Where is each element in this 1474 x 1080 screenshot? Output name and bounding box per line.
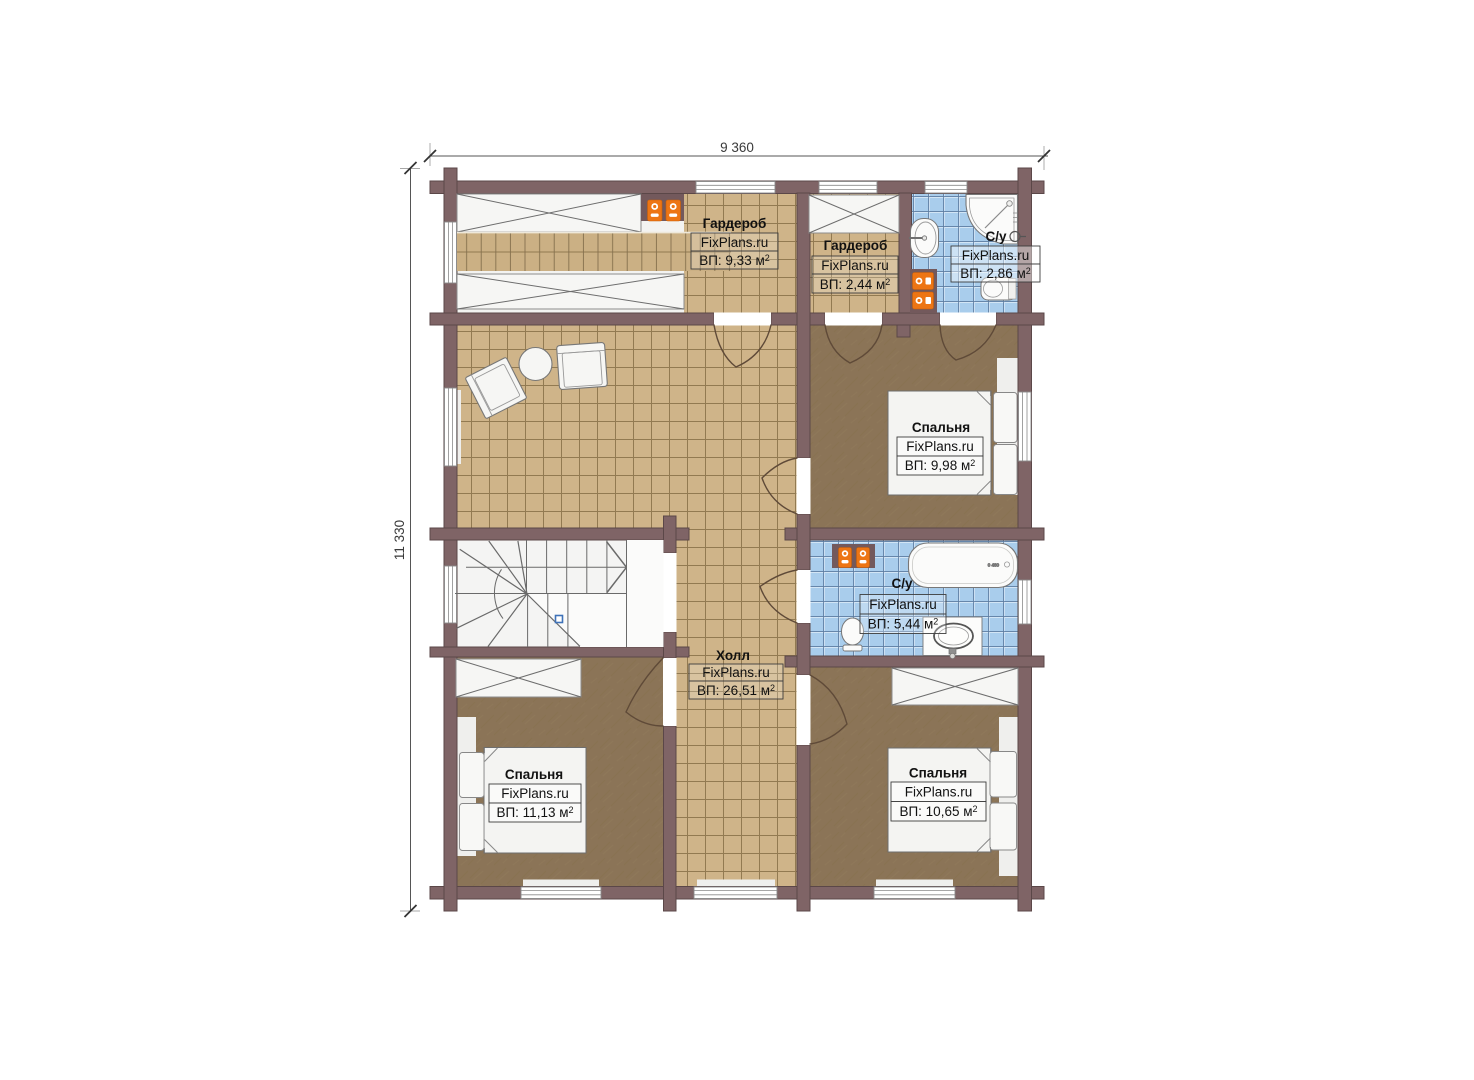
svg-text:ВП: 2,86 м2: ВП: 2,86 м2 bbox=[960, 266, 1031, 281]
svg-text:FixPlans.ru: FixPlans.ru bbox=[869, 597, 937, 612]
svg-text:Холл: Холл bbox=[716, 648, 750, 663]
svg-text:ВП: 9,33 м2: ВП: 9,33 м2 bbox=[699, 253, 770, 268]
svg-text:FixPlans.ru: FixPlans.ru bbox=[702, 665, 770, 680]
svg-text:Спальня: Спальня bbox=[909, 766, 967, 781]
svg-text:FixPlans.ru: FixPlans.ru bbox=[905, 785, 973, 800]
svg-text:Спальня: Спальня bbox=[505, 767, 563, 782]
svg-text:ВП: 9,98 м2: ВП: 9,98 м2 bbox=[905, 458, 976, 473]
svg-text:С/у: С/у bbox=[985, 229, 1007, 244]
svg-text:ВП: 2,44 м2: ВП: 2,44 м2 bbox=[820, 277, 891, 292]
svg-text:ВП: 10,65 м2: ВП: 10,65 м2 bbox=[899, 804, 977, 819]
svg-text:9 360: 9 360 bbox=[720, 140, 754, 155]
svg-text:11 330: 11 330 bbox=[392, 520, 407, 560]
svg-text:0 480: 0 480 bbox=[988, 563, 1000, 568]
svg-text:Гардероб: Гардероб bbox=[824, 238, 888, 253]
svg-text:FixPlans.ru: FixPlans.ru bbox=[821, 258, 889, 273]
svg-text:С/у: С/у bbox=[891, 576, 913, 591]
svg-text:Спальня: Спальня bbox=[912, 420, 970, 435]
svg-text:Гардероб: Гардероб bbox=[703, 216, 767, 231]
svg-text:ВП: 11,13 м2: ВП: 11,13 м2 bbox=[496, 805, 573, 820]
svg-text:FixPlans.ru: FixPlans.ru bbox=[701, 235, 769, 250]
svg-text:FixPlans.ru: FixPlans.ru bbox=[962, 248, 1030, 263]
svg-text:ВП: 5,44 м2: ВП: 5,44 м2 bbox=[868, 617, 939, 632]
svg-text:ВП: 26,51 м2: ВП: 26,51 м2 bbox=[697, 683, 775, 698]
svg-text:FixPlans.ru: FixPlans.ru bbox=[501, 786, 569, 801]
svg-text:FixPlans.ru: FixPlans.ru bbox=[906, 439, 974, 454]
